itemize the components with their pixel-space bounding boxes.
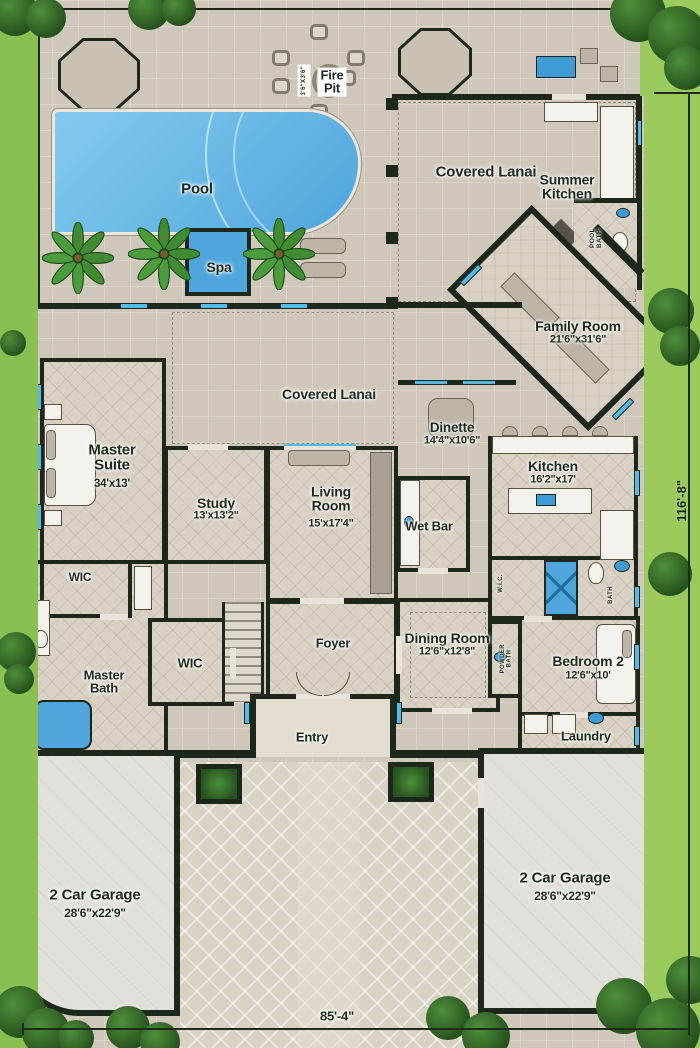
fountain [536,56,576,78]
tree-icon [648,552,692,596]
pool-bath-label: Pool Bath [589,228,603,248]
summer-kitchen-label: Summer Kitchen [540,173,595,202]
pillow [46,468,56,498]
door-opening [188,444,228,450]
planter [196,764,242,804]
depth-dimension-line [688,92,690,1030]
washer [524,714,548,734]
window-marker [200,303,228,309]
garage-right-label: 2 Car Garage [520,870,611,885]
tree-icon [140,1022,180,1048]
door-opening [100,614,128,620]
summer-kitchen-counter [544,102,598,122]
family-room-dim: 21'6"x31'6" [550,334,606,345]
bar-stool [562,426,578,436]
window-marker [280,303,308,309]
bar-stool [502,426,518,436]
gazebo-octagon [58,38,140,112]
door-opening [230,648,236,678]
builtin-cabinet [370,452,392,594]
fire-pit-label: Fire Pit [318,69,345,96]
patio-chair [580,48,598,64]
tree-icon [462,1012,510,1048]
master-wic [40,560,132,618]
gazebo-floor [61,41,137,109]
tree-icon [4,664,34,694]
pool [55,112,358,232]
spa-label: Spa [206,260,231,274]
bar-stool [592,426,608,436]
staircase [222,602,264,702]
pergola-floor [401,31,469,93]
window-marker [120,303,148,309]
summer-kitchen-counter [600,106,634,206]
tree-icon [26,0,66,38]
wet-bar-label: Wet Bar [405,519,452,532]
shower [544,560,578,616]
entry-walk [298,762,360,1048]
tree-icon [162,0,196,26]
pool-label: Pool [181,181,213,196]
palm-tree-icon [243,218,315,290]
kitchen-counter [600,510,634,560]
dinette-dim: 14'4"x10'6" [424,435,480,446]
window-marker [462,380,496,385]
garage-right-dim: 28'6"x22'9" [534,890,596,902]
nightstand [44,510,62,526]
pool-bath-wall [637,198,642,290]
window-marker [244,702,250,724]
dining-room-dim: 12'6"x12'8" [419,646,475,657]
firepit-chair [272,78,290,94]
width-dimension-line [22,1028,690,1030]
door-opening [418,568,448,574]
sink [616,208,630,218]
utility-sink [588,712,604,724]
pool-curve [233,112,358,232]
tree-icon [58,1020,94,1048]
window-marker [634,586,640,608]
roof-line [172,312,394,444]
powder-bath-label: Powder Bath [500,644,513,673]
study-dim: 13'x13'2" [193,510,238,521]
entry-label: Entry [296,730,328,743]
tree-icon [664,46,700,90]
site-depth-dimension: 116'-8" [674,480,689,522]
dimension-tick [654,92,700,94]
vanity [134,566,152,610]
bed2-wic-label: W.I.C. [498,574,505,593]
bedroom2-label: Bedroom 2 [552,654,623,668]
family-room-label: Family Room [535,319,621,333]
entry-porch-floor [256,699,390,757]
nightstand [44,404,62,420]
dimension-tick [22,1023,24,1035]
deck-edge-left [38,8,40,306]
toilet [588,562,604,584]
window-marker [634,470,640,496]
door-opening [524,616,552,622]
lanai-wall [390,302,522,308]
window-marker [396,702,402,724]
master-wic-label: WIC [69,571,92,583]
door-opening [432,708,472,714]
kitchen-label: Kitchen [528,459,578,473]
site-width-dimension: 85'-4" [320,1009,354,1022]
dining-room-label: Dining Room [405,631,490,645]
tree-icon [0,330,26,356]
firepit-chair [272,50,290,66]
bar-stool [532,426,548,436]
covered-lanai-mid-label: Covered Lanai [282,387,376,401]
kitchen-counter [492,436,634,454]
door-opening [478,778,484,808]
master-tub [34,700,92,750]
tree-icon [660,326,700,366]
firepit-chair [347,50,365,66]
column [386,98,398,110]
palm-tree-icon [128,218,200,290]
sink [536,494,556,506]
pergola-octagon [398,28,472,96]
kitchen-dim: 16'2"x17' [530,474,575,485]
lanai-right-wall [636,94,642,206]
sink [614,560,630,572]
laundry-label: Laundry [561,729,611,742]
garage-left-label: 2 Car Garage [50,887,141,902]
master-suite-label: Master Suite [88,443,135,474]
palm-tree-icon [42,222,114,294]
bedroom2-dim: 12'6"x10' [565,670,610,681]
window-marker [637,120,642,146]
dinette-label: Dinette [430,421,474,435]
lanai-top-wall [392,94,642,100]
door-opening [300,598,344,604]
column [386,165,398,177]
fire-pit-dim-label: 3'6"x3'6" [299,66,310,96]
hall-wic-label: WIC [178,656,203,669]
living-room-dim: 15'x17'4" [308,518,353,529]
firepit-chair [310,24,328,40]
patio-chair [600,66,618,82]
master-bath-label: Master Bath [84,669,125,696]
door-opening [396,636,402,674]
living-room-label: Living Room [311,485,351,514]
window-marker [634,726,640,746]
planter [388,762,434,802]
grass-left [0,0,38,1048]
master-suite-dim: 34'x13' [94,479,130,491]
garage-left-dim: 28'6"x22'9" [64,907,126,919]
study-label: Study [197,496,235,510]
door-opening [552,94,586,100]
covered-lanai-top-label: Covered Lanai [436,164,537,179]
column [386,232,398,244]
window-marker [634,644,640,670]
sofa [288,450,350,466]
bed2-bath-label: Bath [608,586,615,604]
pillow [46,430,56,460]
foyer-label: Foyer [316,636,350,649]
floor-plan: Pool Spa Fire Pit 3'6"x3'6" Covered Lana… [0,0,700,1048]
window-marker [414,380,448,385]
